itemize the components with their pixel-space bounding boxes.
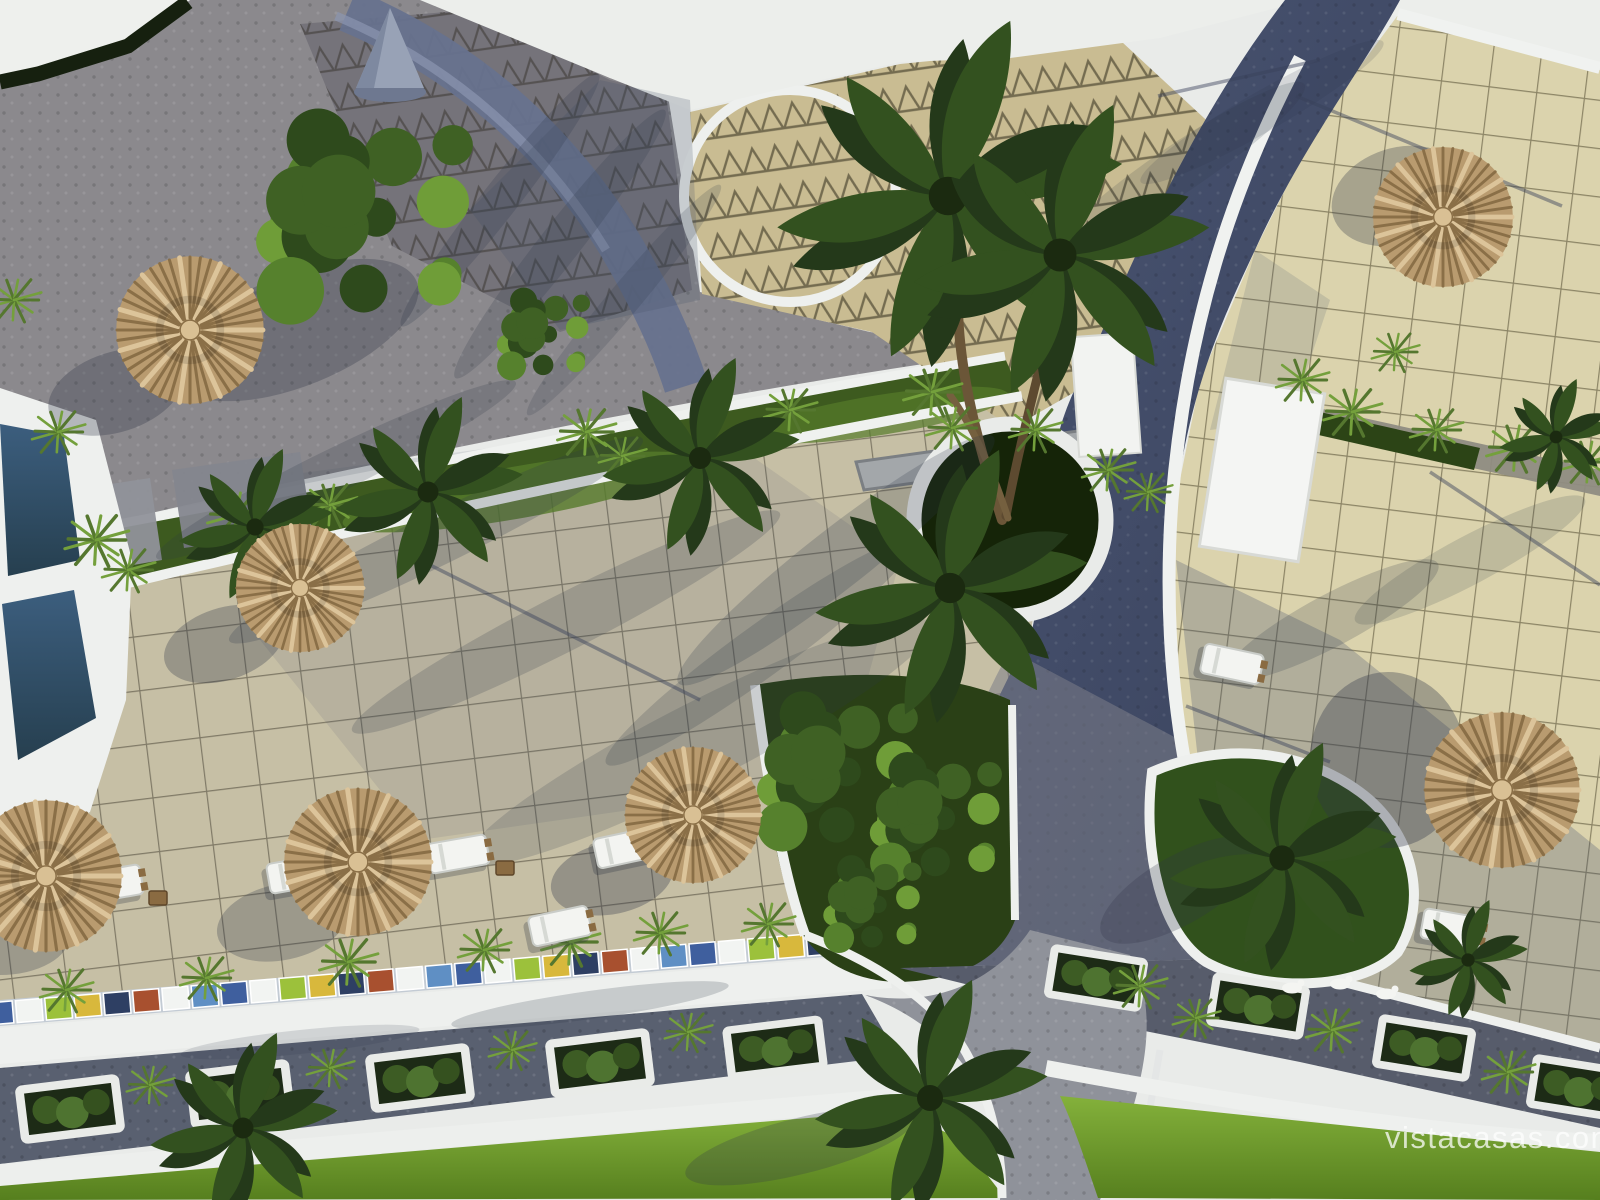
parasol-straw bbox=[236, 524, 364, 652]
mosaic-tile bbox=[103, 991, 131, 1015]
watermark-text: vistacasas.com bbox=[1385, 1120, 1600, 1155]
mosaic-tile bbox=[513, 957, 541, 981]
mosaic-tile bbox=[15, 998, 43, 1022]
mosaic-tile bbox=[425, 964, 453, 988]
mosaic-tile bbox=[660, 944, 688, 968]
mosaic-tile bbox=[279, 976, 307, 1000]
mosaic-tile bbox=[455, 962, 483, 986]
mosaic-tile bbox=[308, 974, 336, 998]
parasol-straw bbox=[116, 256, 263, 403]
pocket-wall-right bbox=[1012, 705, 1015, 920]
mosaic-tile bbox=[689, 942, 717, 966]
mosaic-tile bbox=[777, 934, 805, 958]
parasol-straw bbox=[284, 788, 431, 935]
parasol-straw bbox=[1373, 147, 1513, 287]
street-planter-box bbox=[369, 1047, 471, 1109]
parasol-dark bbox=[1424, 712, 1579, 867]
parasol-dark bbox=[625, 747, 761, 883]
mosaic-tile bbox=[133, 989, 161, 1013]
mosaic-tile bbox=[484, 959, 512, 983]
street-planter-box bbox=[1376, 1018, 1473, 1078]
mosaic-tile bbox=[0, 1001, 14, 1025]
aerial-property-render: vistacasas.com bbox=[0, 0, 1600, 1200]
street-planter-box bbox=[726, 1019, 823, 1076]
side-table bbox=[149, 891, 167, 905]
render-canvas: vistacasas.com bbox=[0, 0, 1600, 1200]
street-planter-box bbox=[19, 1078, 121, 1140]
mosaic-tile bbox=[250, 979, 278, 1003]
mosaic-tile bbox=[748, 937, 776, 961]
mosaic-tile bbox=[338, 971, 366, 995]
mosaic-tile bbox=[601, 949, 629, 973]
street-planter-box bbox=[1530, 1058, 1600, 1118]
mosaic-tile bbox=[162, 986, 190, 1010]
mosaic-tile bbox=[396, 966, 424, 990]
mosaic-tile bbox=[220, 981, 248, 1005]
side-table bbox=[496, 861, 514, 875]
street-planter-box bbox=[549, 1032, 651, 1094]
mosaic-tile bbox=[367, 969, 395, 993]
mosaic-tile bbox=[718, 939, 746, 963]
